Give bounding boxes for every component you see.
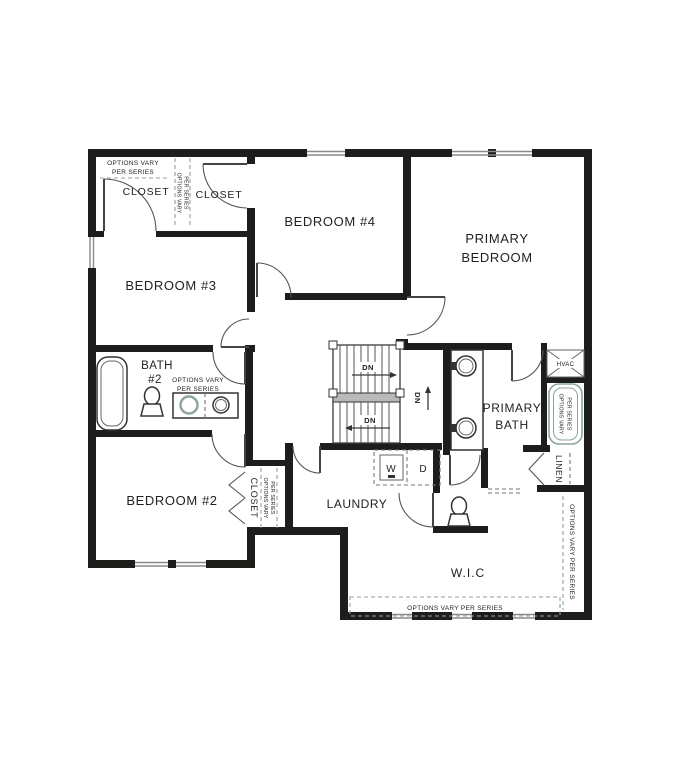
annotation-options-vary-bath2-line1: OPTIONS VARY: [172, 377, 224, 384]
stairs-dn-label-lower: DN: [364, 416, 376, 425]
bifold-linen: [529, 453, 544, 485]
room-label-primary-bedroom-line1: PRIMARY: [465, 231, 528, 246]
hvac-closet: HVAC: [547, 350, 584, 377]
toilet-bath2: [141, 387, 163, 416]
staircase: DN DN DN: [329, 341, 431, 443]
annotation-options-vary-closet2-line2: PER SERIES: [269, 481, 275, 514]
bathtub-bath2: [97, 357, 127, 430]
bathtub-primary-optional: OPTIONS VARY PER SERIES: [549, 384, 582, 444]
annotation-options-vary-closet2-line1: OPTIONS VARY: [262, 478, 268, 519]
washer-dryer: W D: [374, 450, 440, 485]
stairs-dn-label-upper: DN: [362, 363, 374, 372]
room-label-primary-bedroom-line2: BEDROOM: [461, 250, 532, 265]
washer-label: W: [386, 464, 396, 475]
room-label-bath-2-line1: BATH: [141, 360, 173, 372]
annotation-options-vary-wic-right: OPTIONS VARY PER SERIES: [568, 504, 575, 600]
annotation-options-vary-tub-line2: PER SERIES: [566, 397, 572, 430]
room-label-bedroom-3: BEDROOM #3: [125, 278, 216, 293]
annotation-options-vary-divider-line2: PER SERIES: [183, 176, 189, 209]
annotation-options-vary-closet1-line2: PER SERIES: [112, 169, 154, 176]
room-label-hvac: HVAC: [557, 362, 575, 368]
floor-plan-image: DN DN DN: [0, 0, 676, 768]
vanity-bath2: [173, 393, 238, 418]
annotation-options-vary-closet1-line1: OPTIONS VARY: [107, 160, 159, 167]
annotation-options-vary-tub-line1: OPTIONS VARY: [558, 394, 564, 435]
room-label-primary-bath-line2: BATH: [495, 418, 529, 432]
toilet-primary: [448, 497, 470, 526]
room-label-bedroom-2: BEDROOM #2: [126, 493, 217, 508]
room-label-closet-left: CLOSET: [123, 186, 170, 198]
bifold-closet-bedroom2: [229, 472, 245, 498]
stairs-dn-label-side: DN: [413, 392, 422, 404]
room-label-bath-2-line2: #2: [148, 374, 162, 386]
annotation-options-vary-wic-bottom: OPTIONS VARY PER SERIES: [407, 605, 503, 612]
stair-landing: [333, 393, 400, 402]
dryer-label: D: [419, 464, 426, 475]
annotation-options-vary-divider-line1: OPTIONS VARY: [176, 173, 182, 214]
vanity-primary: [451, 350, 483, 450]
room-label-bedroom-4: BEDROOM #4: [284, 214, 375, 229]
room-label-primary-bath-line1: PRIMARY: [483, 401, 542, 415]
floor-plan-drawing: DN DN DN: [0, 0, 676, 768]
annotation-options-vary-bath2-line2: PER SERIES: [177, 386, 219, 393]
room-label-closet-mid: CLOSET: [196, 189, 243, 201]
room-label-wic: W.I.C: [451, 566, 485, 580]
room-label-closet-bedroom2: CLOSET: [249, 478, 259, 519]
room-label-laundry: LAUNDRY: [327, 497, 388, 511]
room-label-linen: LINEN: [554, 455, 564, 483]
